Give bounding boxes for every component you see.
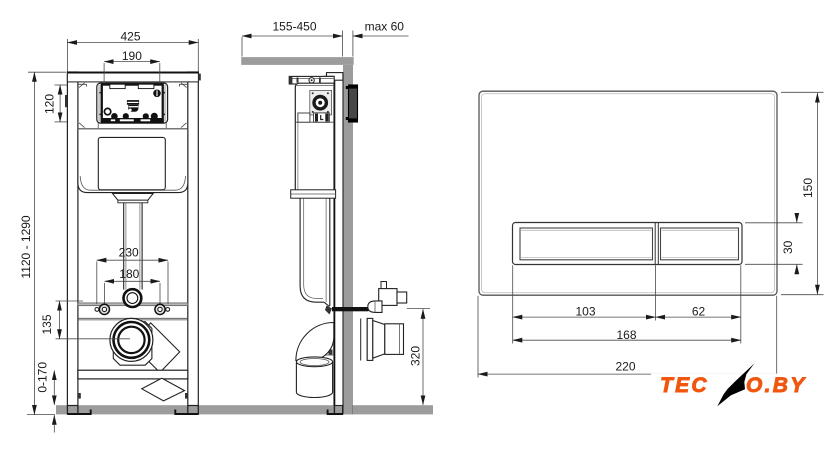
svg-text:150: 150: [801, 178, 815, 198]
svg-text:O.BY: O.BY: [746, 374, 807, 397]
svg-text:155-450: 155-450: [272, 20, 316, 34]
svg-text:168: 168: [616, 328, 636, 342]
svg-text:135: 135: [40, 314, 54, 334]
svg-text:180: 180: [119, 267, 139, 281]
svg-text:220: 220: [615, 360, 635, 374]
svg-text:30: 30: [781, 240, 795, 254]
svg-text:190: 190: [122, 49, 142, 63]
svg-text:103: 103: [575, 305, 595, 319]
svg-text:1120 - 1290: 1120 - 1290: [19, 215, 33, 278]
svg-text:425: 425: [120, 29, 140, 43]
svg-text:max 60: max 60: [365, 20, 405, 34]
svg-text:62: 62: [692, 305, 706, 319]
svg-text:230: 230: [119, 246, 139, 260]
svg-text:320: 320: [409, 346, 423, 366]
svg-text:120: 120: [42, 94, 56, 114]
svg-text:0-170: 0-170: [35, 362, 49, 393]
svg-text:TEC: TEC: [660, 374, 709, 397]
